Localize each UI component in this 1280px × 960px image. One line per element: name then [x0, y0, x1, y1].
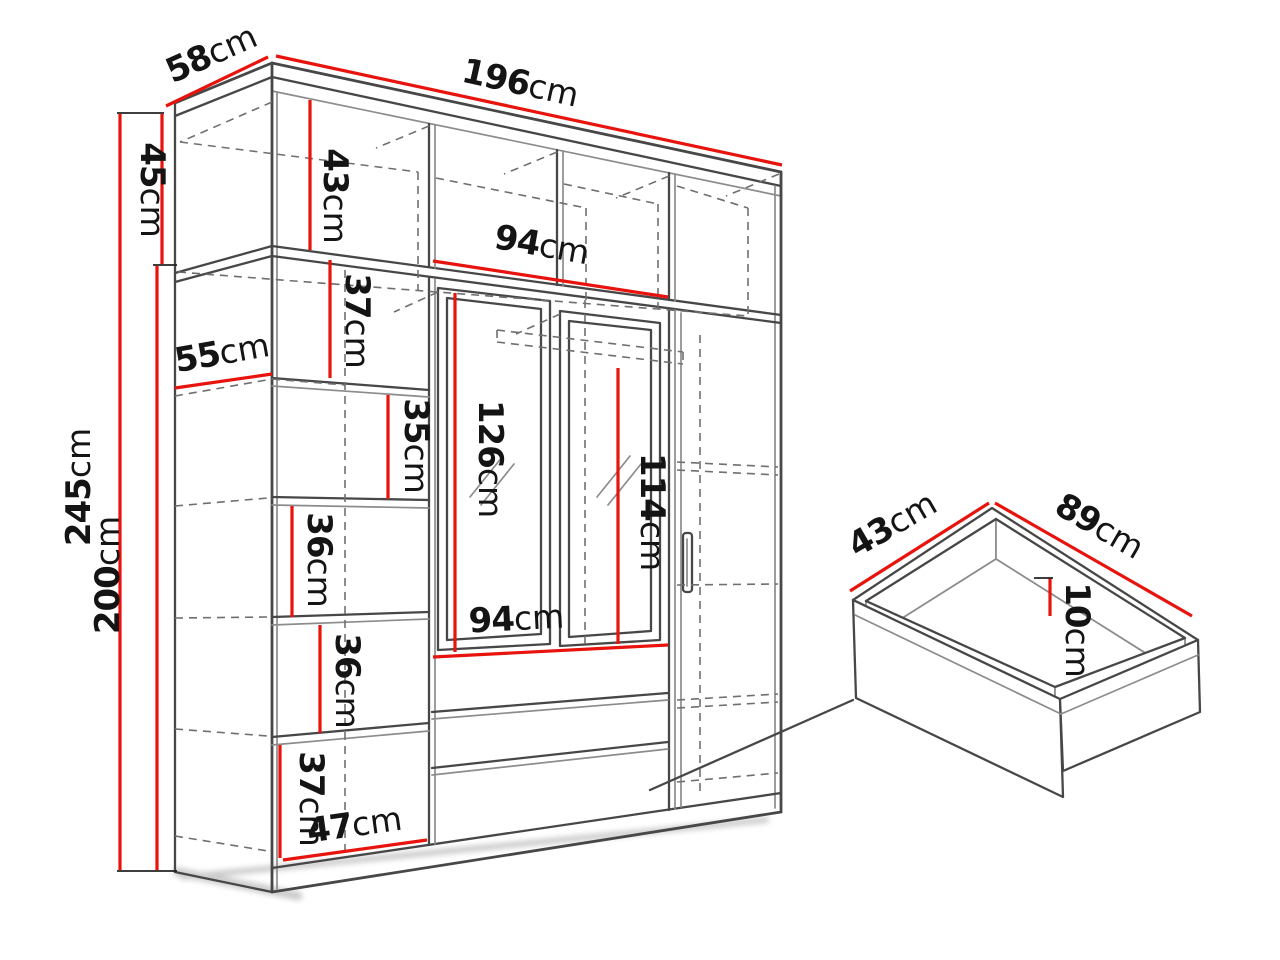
- dim-label-94cm-upper: 94cm: [491, 217, 592, 273]
- wardrobe-dimension-diagram: 58cm 196cm 45cm 43cm 94cm 245cm 200cm 37…: [0, 0, 1280, 960]
- drawer-detail-drawing: [853, 508, 1200, 797]
- dim-label-94cm-lower: 94cm: [468, 597, 566, 642]
- dim-label-drawer-10cm: 10cm: [1057, 582, 1097, 678]
- dim-label-36cm-upper: 36cm: [299, 512, 339, 608]
- floor-shadow: [178, 820, 766, 896]
- upper-compartment-dividers: [429, 124, 675, 301]
- dim-label-35cm: 35cm: [396, 398, 436, 494]
- dim-label-55cm: 55cm: [172, 325, 273, 381]
- right-door: [681, 313, 692, 807]
- dim-label-37cm-upper: 37cm: [337, 273, 377, 369]
- dim-label-36cm-lower: 36cm: [327, 633, 367, 729]
- dim-label-126cm: 126cm: [470, 400, 510, 518]
- drawer-fronts: [432, 693, 668, 775]
- dim-label-114cm: 114cm: [632, 453, 672, 571]
- dim-label-200cm: 200cm: [88, 516, 128, 634]
- dim-label-45cm: 45cm: [132, 142, 172, 238]
- dim-label-58cm: 58cm: [160, 16, 264, 91]
- dim-label-43cm: 43cm: [315, 148, 355, 244]
- diagram-page: 58cm 196cm 45cm 43cm 94cm 245cm 200cm 37…: [0, 0, 1280, 960]
